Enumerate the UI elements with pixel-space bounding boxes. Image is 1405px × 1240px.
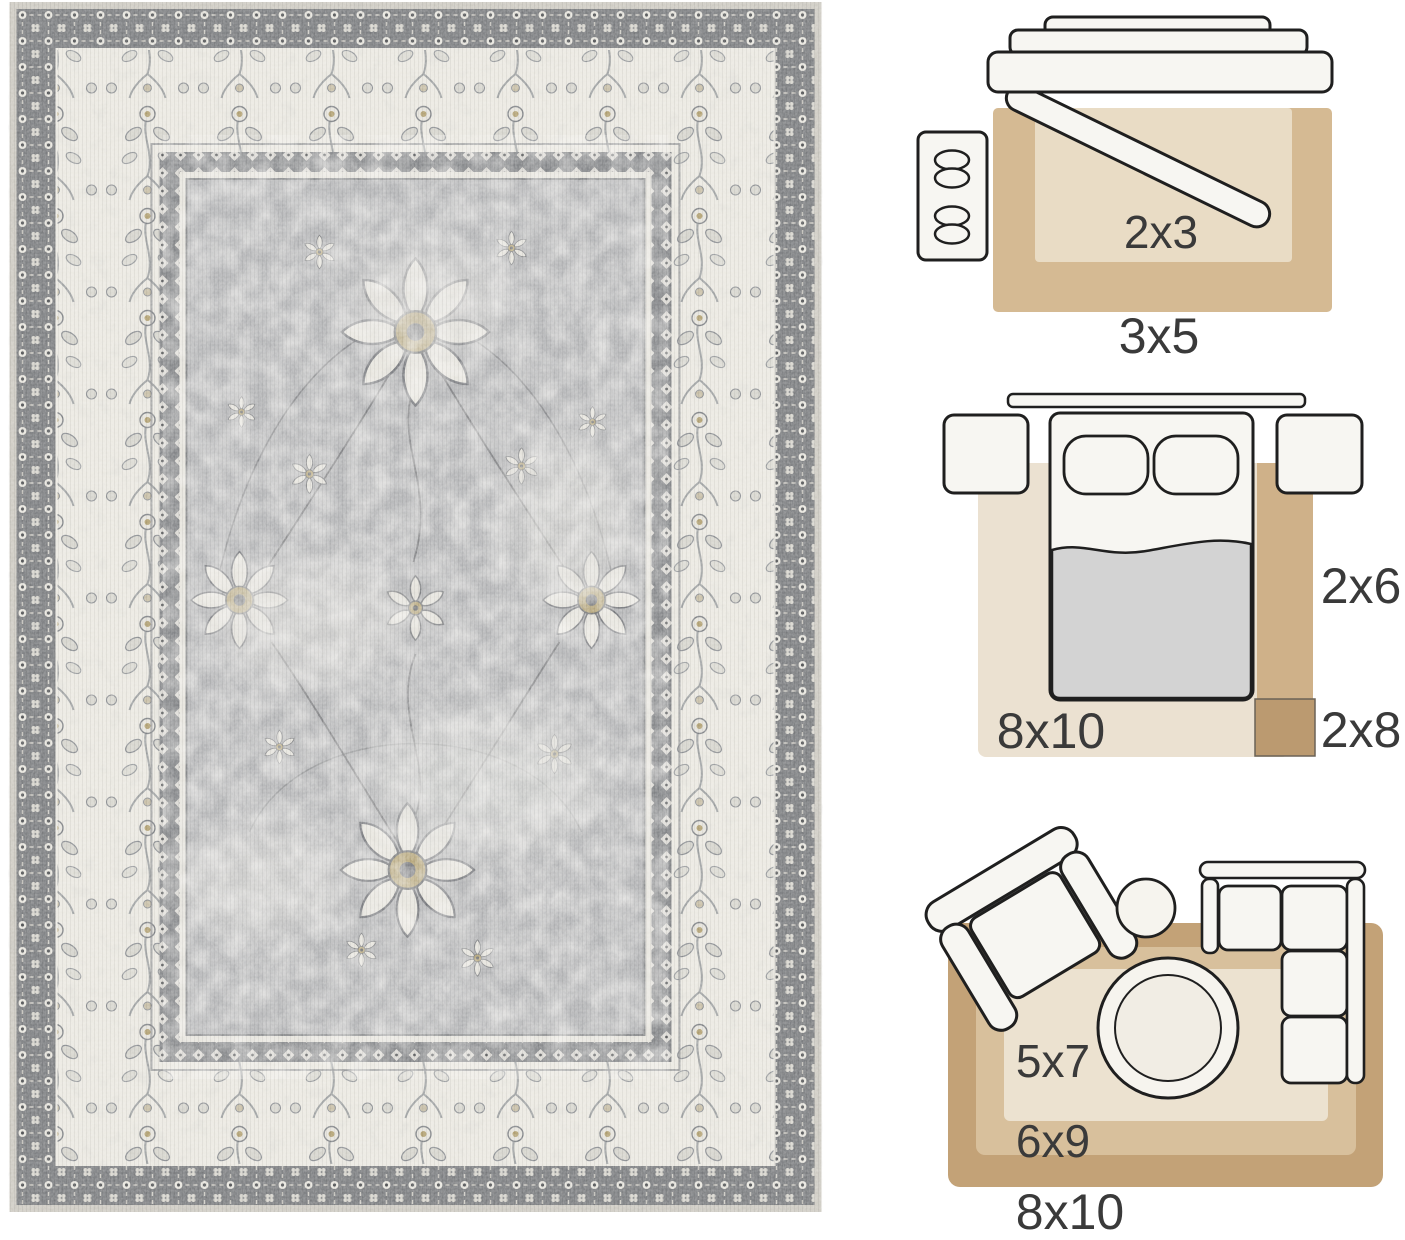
headboard-icon (1008, 394, 1305, 407)
size-label-8x10-living-room: 8x10 (1016, 1187, 1124, 1237)
pillow-right (1154, 436, 1238, 494)
size-label-2x8: 2x8 (1321, 705, 1402, 755)
rug-photo (8, 2, 823, 1212)
size-label-8x10-bedroom: 8x10 (997, 706, 1105, 756)
size-label-3x5: 3x5 (1119, 311, 1200, 361)
bed-icon (1050, 413, 1253, 700)
coffee-table-icon (1098, 958, 1238, 1098)
size-label-6x9: 6x9 (1016, 1118, 1090, 1164)
console-table-icon (988, 17, 1332, 92)
nightstand-left-icon (944, 415, 1028, 493)
size-label-5x7: 5x7 (1016, 1038, 1090, 1084)
size-diagram-living-room (940, 848, 1405, 1193)
pillow-left (1064, 436, 1148, 494)
cabinet-icon (918, 132, 987, 260)
product-image: 2x3 3x5 2x6 8x10 2x8 5x7 6x9 8x10 (0, 0, 1405, 1233)
nightstand-right-icon (1277, 415, 1362, 493)
runner-2x6 (1257, 463, 1313, 699)
side-table-icon (1117, 879, 1175, 937)
size-label-2x3: 2x3 (1124, 209, 1198, 255)
runner-2x8 (1255, 699, 1315, 756)
size-label-2x6: 2x6 (1321, 561, 1402, 611)
